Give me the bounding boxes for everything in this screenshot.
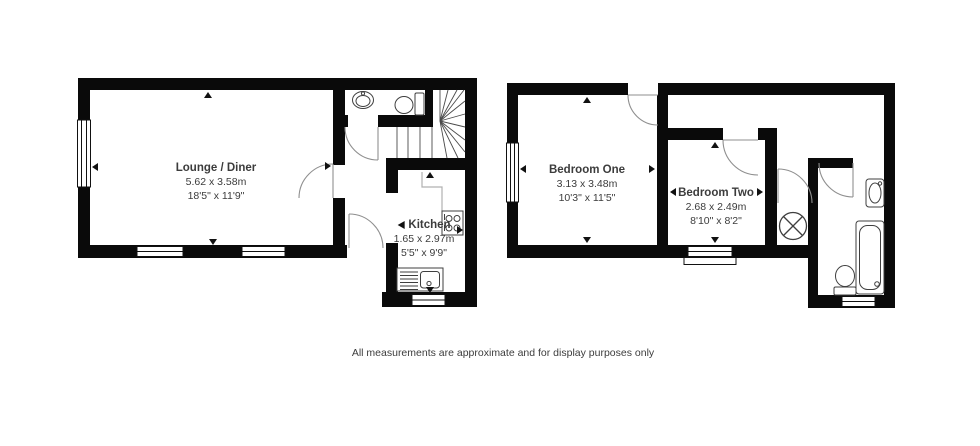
window — [507, 143, 519, 202]
room-label-bedroom-one: Bedroom One 3.13 x 3.48m 10'3" x 11'5" — [549, 163, 625, 205]
door-swing — [349, 214, 383, 248]
dimension-arrow — [209, 239, 217, 245]
dimension-arrow — [649, 165, 655, 173]
window — [412, 295, 445, 306]
door-swing — [723, 140, 758, 175]
door-swing — [628, 95, 658, 125]
wall — [765, 128, 777, 245]
dimension-arrow — [204, 92, 212, 98]
wall — [808, 158, 853, 168]
room-label-lounge-diner: Lounge / Diner 5.62 x 3.58m 18'5" x 11'9… — [176, 161, 257, 203]
wall — [78, 78, 477, 90]
wc-toilet-icon — [395, 93, 424, 115]
wall — [333, 198, 345, 245]
dimension-arrow — [711, 237, 719, 243]
room-name: Bedroom One — [549, 163, 625, 177]
ground-floor-plan — [78, 78, 478, 307]
window — [684, 247, 736, 265]
window — [78, 120, 91, 187]
window — [137, 247, 183, 257]
room-metric-dimensions: 3.13 x 3.48m — [549, 177, 625, 191]
room-imperial-dimensions: 8'10" x 8'2" — [678, 214, 754, 228]
cylinder-icon — [780, 213, 807, 240]
dimension-arrow — [520, 165, 526, 173]
room-imperial-dimensions: 5'5" x 9'9" — [394, 246, 455, 260]
kitchen-sink-icon — [397, 268, 443, 291]
wall — [78, 245, 347, 258]
toilet-icon — [834, 266, 856, 296]
wc-basin-icon — [353, 92, 374, 109]
wall — [465, 78, 477, 307]
wall — [378, 115, 433, 127]
bathroom-basin-icon — [866, 179, 884, 207]
dimension-arrow — [757, 188, 763, 196]
window — [842, 297, 875, 307]
room-label-kitchen: Kitchen 1.65 x 2.97m 5'5" x 9'9" — [394, 218, 455, 260]
wall — [657, 95, 668, 245]
wall — [657, 128, 723, 140]
dimension-arrow — [711, 142, 719, 148]
wall — [425, 90, 433, 117]
wall — [884, 83, 895, 308]
floorplan-canvas: Lounge / Diner 5.62 x 3.58m 18'5" x 11'9… — [0, 0, 980, 446]
floorplan-drawing — [0, 0, 980, 446]
wall — [386, 158, 398, 193]
door-swing — [299, 164, 333, 198]
wall — [658, 83, 895, 95]
room-metric-dimensions: 1.65 x 2.97m — [394, 232, 455, 246]
room-name: Bedroom Two — [678, 186, 754, 200]
door-swing — [819, 163, 853, 197]
window — [242, 247, 285, 257]
dimension-arrow — [583, 237, 591, 243]
wall — [333, 90, 345, 165]
dimension-arrow — [670, 188, 676, 196]
room-imperial-dimensions: 10'3" x 11'5" — [549, 191, 625, 205]
kitchen-arrow-left-icon — [397, 221, 404, 229]
room-name: Kitchen — [408, 218, 450, 232]
room-metric-dimensions: 5.62 x 3.58m — [176, 175, 257, 189]
door-swing — [778, 169, 812, 203]
dimension-arrow — [325, 162, 331, 170]
wall — [333, 115, 348, 127]
room-label-bedroom-two: Bedroom Two 2.68 x 2.49m 8'10" x 8'2" — [678, 186, 754, 228]
dimension-arrow — [92, 163, 98, 171]
disclaimer-text: All measurements are approximate and for… — [352, 347, 654, 359]
room-metric-dimensions: 2.68 x 2.49m — [678, 200, 754, 214]
room-name: Lounge / Diner — [176, 161, 257, 175]
wall — [808, 158, 818, 308]
wall — [507, 245, 817, 258]
room-imperial-dimensions: 18'5" x 11'9" — [176, 189, 257, 203]
dimension-arrow — [583, 97, 591, 103]
wall — [507, 83, 628, 95]
door-swing — [345, 127, 378, 160]
dimension-arrow — [426, 172, 434, 178]
bathtub-icon — [856, 221, 884, 294]
